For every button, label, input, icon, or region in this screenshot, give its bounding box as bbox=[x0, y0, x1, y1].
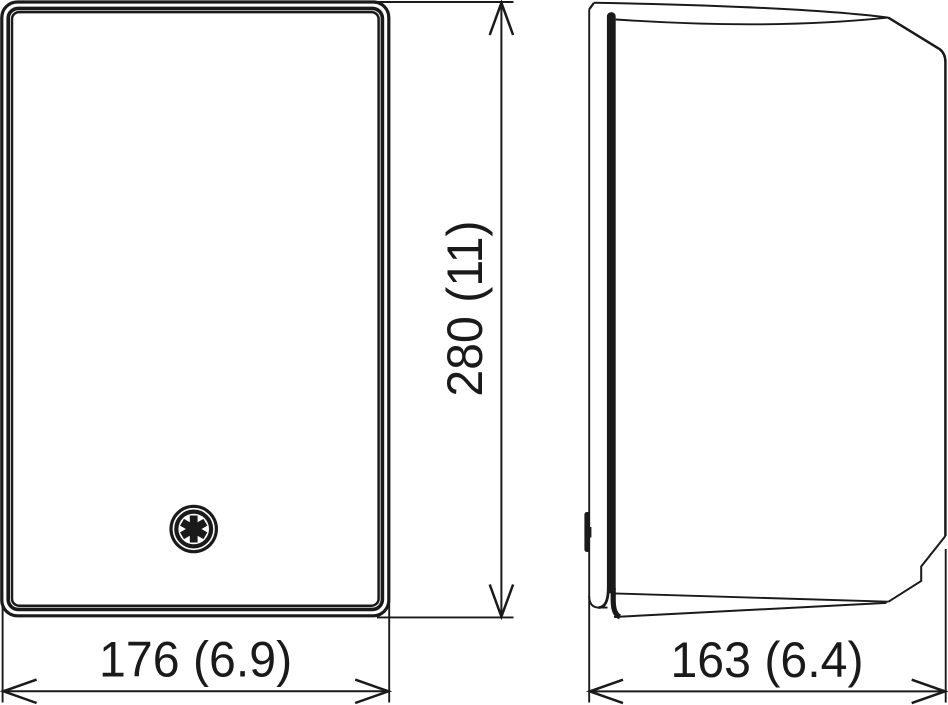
svg-text:280 (11): 280 (11) bbox=[438, 221, 493, 397]
svg-text:163 (6.4): 163 (6.4) bbox=[670, 633, 863, 688]
svg-text:176 (6.9): 176 (6.9) bbox=[99, 633, 292, 688]
